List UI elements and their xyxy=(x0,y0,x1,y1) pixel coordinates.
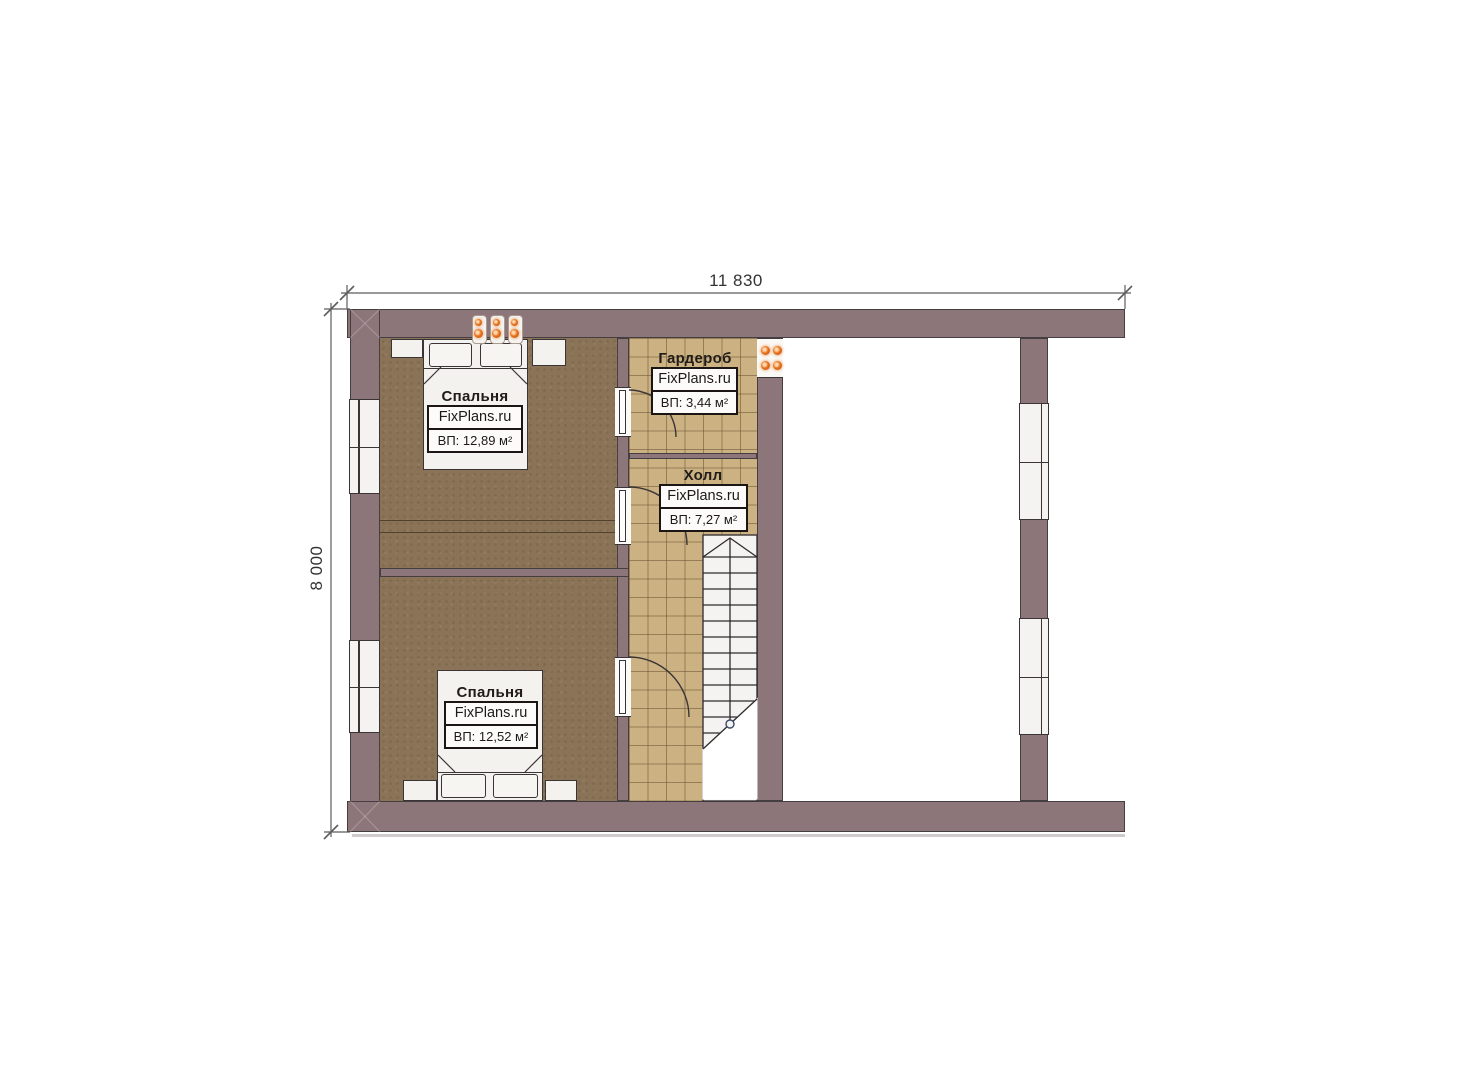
stair-break-line xyxy=(703,699,757,749)
wardrobe-door-leaf xyxy=(619,390,626,434)
dim-tick xyxy=(1118,286,1132,300)
wall-light xyxy=(474,329,483,338)
dresser xyxy=(403,780,437,801)
wall-light xyxy=(511,319,518,326)
blanket-edge xyxy=(424,368,527,369)
window-left-top xyxy=(349,399,380,494)
ceiling-slope-line xyxy=(380,520,617,521)
window-split-line xyxy=(350,687,379,688)
nightstand xyxy=(391,339,423,358)
wardrobe-door xyxy=(615,387,631,437)
dim-tick xyxy=(324,825,338,839)
bedroom-2-door-leaf xyxy=(619,660,626,714)
hall-lower-floor xyxy=(629,535,703,801)
blanket-edge xyxy=(438,772,542,773)
bottom-wall xyxy=(347,801,1125,832)
ceiling-slope-line xyxy=(380,532,617,533)
dresser xyxy=(545,780,577,801)
ceiling-light xyxy=(761,361,770,370)
area-label: ВП: 12,89 м² xyxy=(427,428,523,453)
plan-linework xyxy=(0,0,1473,1080)
window-left-bottom xyxy=(349,640,380,733)
area-label: ВП: 7,27 м² xyxy=(659,507,748,532)
bedroom-2-door xyxy=(615,657,631,717)
pillow xyxy=(493,774,538,798)
dresser xyxy=(532,339,566,366)
window-right-bottom xyxy=(1019,618,1049,735)
floor-plan-canvas: Спальня FixPlans.ru ВП: 12,89 м² Гардеро… xyxy=(0,0,1473,1080)
bedroom-2-info: FixPlans.ru ВП: 12,52 м² xyxy=(444,701,538,749)
staircase xyxy=(703,535,757,801)
pillow xyxy=(441,774,486,798)
wardrobe-name: Гардероб xyxy=(640,350,750,367)
bedroom-1-door-leaf xyxy=(619,490,626,542)
stair-direction-chevron xyxy=(703,538,757,557)
top-wall xyxy=(347,309,1125,338)
pillow xyxy=(429,343,472,367)
left-wall xyxy=(350,309,380,832)
bedroom-1-door xyxy=(615,487,631,545)
dimension-height-label: 8 000 xyxy=(307,538,325,598)
ceiling-light xyxy=(761,346,770,355)
wardrobe-info: FixPlans.ru ВП: 3,44 м² xyxy=(651,367,738,415)
brand-label: FixPlans.ru xyxy=(427,405,523,430)
bedroom-1-info: FixPlans.ru ВП: 12,89 м² xyxy=(427,405,523,453)
area-label: ВП: 12,52 м² xyxy=(444,724,538,749)
ceiling-light xyxy=(773,361,782,370)
wardrobe-hall-divider-wall xyxy=(629,453,757,459)
area-label: ВП: 3,44 м² xyxy=(651,390,738,415)
stairwell-wall xyxy=(757,338,783,801)
bedrooms-divider-wall xyxy=(380,568,629,577)
wall-light xyxy=(492,329,501,338)
dimension-width-label: 11 830 xyxy=(661,271,811,291)
window-split-line xyxy=(350,447,379,448)
window-split-line xyxy=(1020,462,1048,463)
stair-break-node xyxy=(726,720,734,728)
brand-label: FixPlans.ru xyxy=(659,484,748,509)
brand-label: FixPlans.ru xyxy=(444,701,538,726)
bedroom-1-name: Спальня xyxy=(420,388,530,405)
light-niche xyxy=(757,339,783,378)
wall-light xyxy=(475,319,482,326)
window-right-top xyxy=(1019,403,1049,520)
plan-shadow xyxy=(352,834,1125,837)
pillow xyxy=(480,343,522,367)
wall-light xyxy=(493,319,500,326)
ceiling-light xyxy=(773,346,782,355)
hall-name: Холл xyxy=(648,467,758,484)
hall-info: FixPlans.ru ВП: 7,27 м² xyxy=(659,484,748,532)
window-split-line xyxy=(1020,677,1048,678)
dim-tick xyxy=(324,302,338,316)
wall-light xyxy=(510,329,519,338)
brand-label: FixPlans.ru xyxy=(651,367,738,392)
bedroom-2-name: Спальня xyxy=(437,684,543,701)
dim-tick xyxy=(340,286,354,300)
